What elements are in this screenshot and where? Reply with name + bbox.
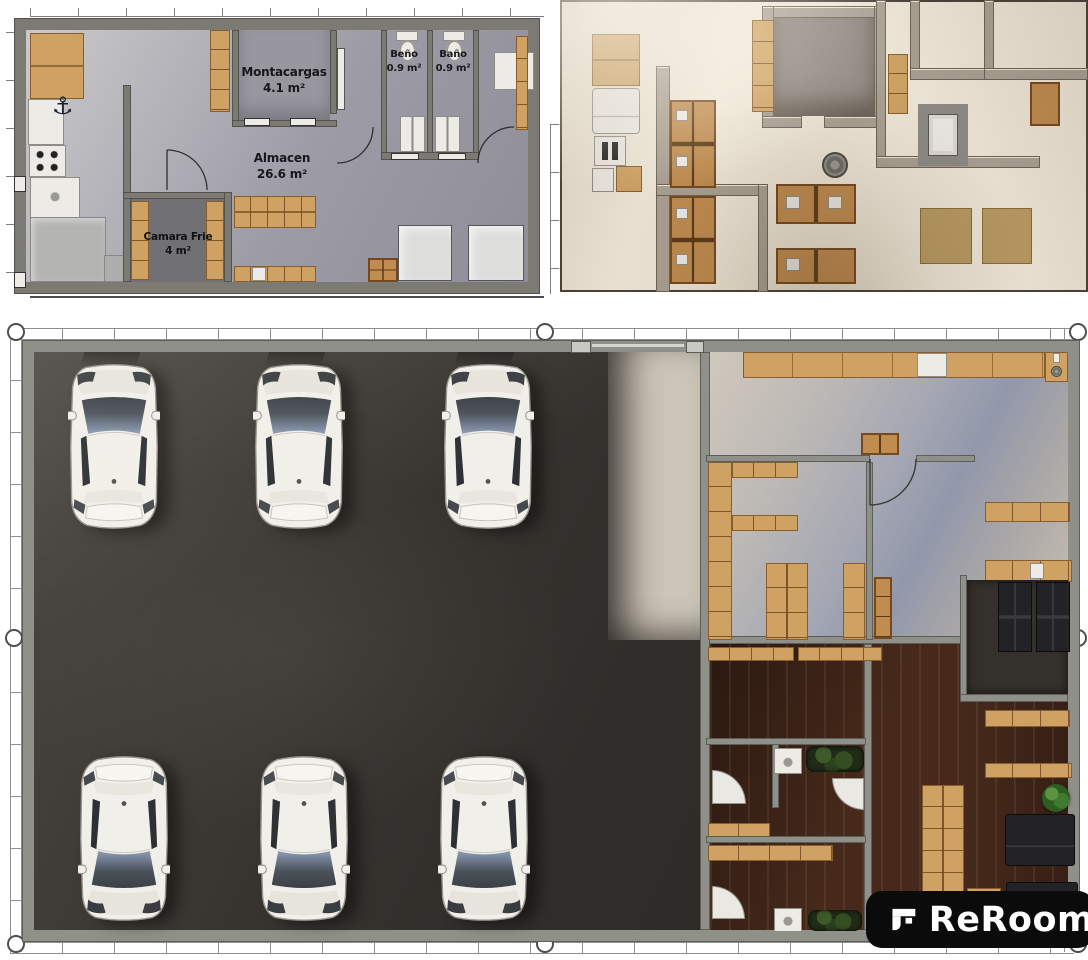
reroom-logo-badge: ReRoom: [866, 891, 1088, 948]
pallet: [982, 208, 1032, 264]
floor-plan-2d-panel: ⚓: [4, 4, 562, 304]
crate: [1030, 82, 1060, 126]
center-room-floor: [774, 18, 874, 116]
floor-drain-icon: [822, 152, 848, 178]
room-label-bano-right: Baño 0.9 m²: [429, 48, 477, 75]
crate-label: [676, 156, 688, 167]
cabinet: [616, 166, 642, 192]
crate-stack: [670, 196, 716, 284]
wall: [984, 68, 1088, 80]
crate-row: [776, 248, 856, 284]
parking-plan-panel: [2, 320, 1088, 960]
room-name: Camara Frie: [144, 231, 213, 243]
upper-cabinet: [592, 34, 640, 86]
electrical-unit: [928, 114, 958, 156]
room-area: 4 m²: [132, 244, 224, 258]
reroom-floorplan-render: ⚓: [0, 0, 1088, 960]
crate-row: [776, 184, 856, 224]
crate-label: [828, 196, 842, 209]
cabinet: [888, 54, 908, 114]
wall: [656, 66, 670, 292]
crate-label: [786, 258, 800, 271]
wall: [910, 68, 994, 80]
room-label-almacen: Almacen 26.6 m²: [234, 150, 330, 182]
crate-label: [676, 208, 688, 219]
pallet: [920, 208, 972, 264]
wall: [758, 184, 768, 292]
reroom-logo-text: ReRoom: [929, 900, 1088, 940]
room-label-bano-left: Beño 0.9 m²: [382, 48, 426, 75]
room-area: 0.9 m²: [429, 62, 477, 76]
wall: [876, 0, 886, 168]
room-label-montacargas: Montacargas 4.1 m²: [236, 64, 332, 96]
cabinet: [592, 168, 614, 192]
room-name: Almacen: [254, 151, 310, 165]
room-area: 0.9 m²: [382, 62, 426, 76]
room-area: 26.6 m²: [234, 166, 330, 182]
oven: [594, 136, 626, 166]
crate-label: [676, 254, 688, 265]
fridge: [592, 88, 640, 134]
crate-stack: [670, 100, 716, 188]
tall-cabinet: [752, 20, 774, 112]
room-label-camara-fria: Camara Frie 4 m²: [132, 230, 224, 258]
room-name: Montacargas: [241, 65, 326, 79]
room-area: 4.1 m²: [236, 80, 332, 96]
door-arcs-overlay: [2, 320, 1088, 960]
wall: [762, 116, 802, 128]
wall: [910, 0, 920, 70]
crate-label: [676, 110, 688, 121]
wall: [762, 6, 886, 18]
reroom-r-icon: [890, 904, 918, 935]
render-3d-warehouse-panel: [560, 0, 1088, 292]
crate-label: [786, 196, 800, 209]
room-name: Beño: [390, 49, 418, 60]
room-name: Baño: [439, 49, 467, 60]
